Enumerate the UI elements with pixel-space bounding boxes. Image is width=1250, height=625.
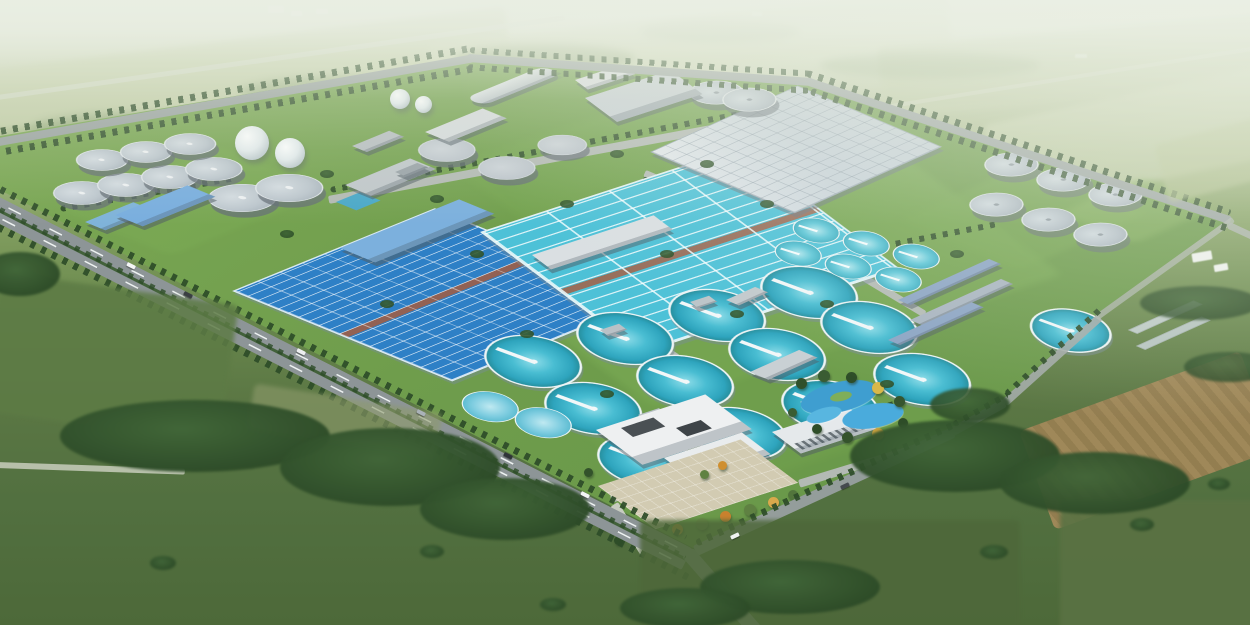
plant-tree	[950, 250, 964, 258]
plant-tree	[280, 230, 294, 238]
plant-tree	[380, 300, 394, 308]
farmhouse	[1213, 263, 1228, 272]
gas-holder-sphere	[275, 138, 305, 168]
plaza-tree	[584, 468, 593, 477]
distant-building	[291, 11, 302, 16]
plant-tree	[560, 200, 574, 208]
garden-tree	[812, 424, 822, 434]
tree-cluster	[620, 588, 750, 625]
plant-tree	[660, 250, 674, 258]
farmhouse	[1191, 250, 1212, 262]
garden-tree	[894, 396, 905, 407]
plant-tree	[520, 330, 534, 338]
plant-tree	[470, 250, 484, 258]
plaza-tree	[718, 461, 727, 470]
plant-tree	[320, 170, 334, 178]
plaza-tree	[700, 470, 709, 479]
tree-cluster	[540, 598, 566, 611]
plant-tree	[820, 300, 834, 308]
farm-field	[1060, 500, 1250, 625]
tree-cluster	[1140, 286, 1250, 320]
tree-cluster	[150, 556, 176, 570]
garden-tree	[788, 408, 797, 417]
distant-building	[1075, 54, 1087, 58]
tree-cluster	[1130, 518, 1154, 531]
distant-building	[268, 6, 284, 13]
aerial-rendering-wastewater-plant	[0, 0, 1250, 625]
gas-holder-sphere	[390, 89, 410, 109]
distant-building	[316, 9, 328, 14]
plant-tree	[760, 200, 774, 208]
plant-tree	[610, 150, 624, 158]
plant-tree	[880, 380, 894, 388]
distant-tree-line	[820, 52, 1040, 78]
plant-tree	[600, 390, 614, 398]
tree-cluster	[1000, 452, 1190, 514]
tree-cluster	[420, 545, 444, 558]
garden-tree	[846, 372, 857, 383]
tree-cluster	[420, 478, 590, 540]
distant-tree-line	[640, 20, 800, 42]
rural-road	[1227, 222, 1250, 254]
tree-cluster	[930, 388, 1010, 422]
garden-tree	[818, 370, 830, 382]
gas-holder-sphere	[235, 126, 269, 160]
plant-tree	[700, 160, 714, 168]
gas-holder-sphere	[415, 96, 432, 113]
plant-tree	[730, 310, 744, 318]
tree-cluster	[1208, 478, 1230, 490]
plant-tree	[430, 195, 444, 203]
tree-cluster	[980, 545, 1008, 559]
garden-tree	[842, 432, 853, 443]
garden-tree	[796, 378, 807, 389]
distant-building	[752, 12, 762, 16]
